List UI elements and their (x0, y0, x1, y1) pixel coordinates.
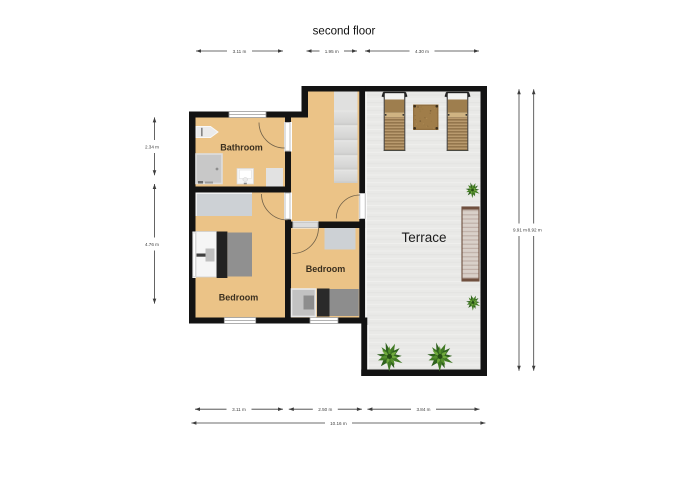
svg-text:4.76 m: 4.76 m (145, 242, 159, 247)
svg-text:4.30 m: 4.30 m (415, 49, 429, 54)
svg-text:9.91 m: 9.91 m (513, 228, 527, 233)
svg-text:3.11 m: 3.11 m (232, 407, 246, 412)
svg-text:second floor: second floor (313, 26, 376, 38)
svg-text:8.92 m: 8.92 m (528, 228, 542, 233)
svg-text:Bedroom: Bedroom (219, 293, 259, 303)
svg-text:Bedroom: Bedroom (306, 264, 346, 274)
svg-text:2.34 m: 2.34 m (145, 144, 159, 149)
svg-text:2.50 m: 2.50 m (318, 407, 332, 412)
svg-text:Bathroom: Bathroom (220, 143, 263, 153)
svg-text:Terrace: Terrace (401, 230, 446, 245)
svg-text:3.11 m: 3.11 m (233, 49, 247, 54)
svg-text:1.95 m: 1.95 m (325, 49, 339, 54)
svg-text:3.84 m: 3.84 m (416, 407, 430, 412)
svg-text:10.16 m: 10.16 m (330, 421, 347, 426)
